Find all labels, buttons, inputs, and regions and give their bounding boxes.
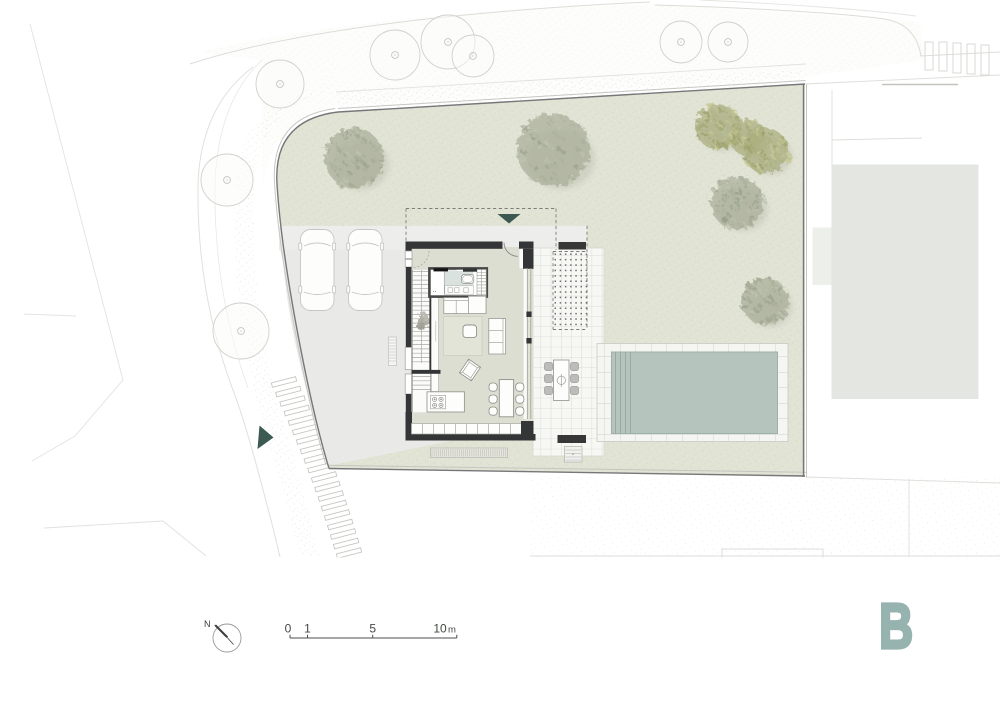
svg-text:1: 1 (304, 622, 311, 636)
svg-text:B: B (879, 590, 913, 662)
svg-text:5: 5 (369, 622, 376, 636)
svg-text:m: m (448, 625, 456, 636)
svg-text:10: 10 (433, 622, 447, 636)
svg-text:N: N (204, 619, 211, 629)
svg-text:0: 0 (285, 622, 292, 636)
